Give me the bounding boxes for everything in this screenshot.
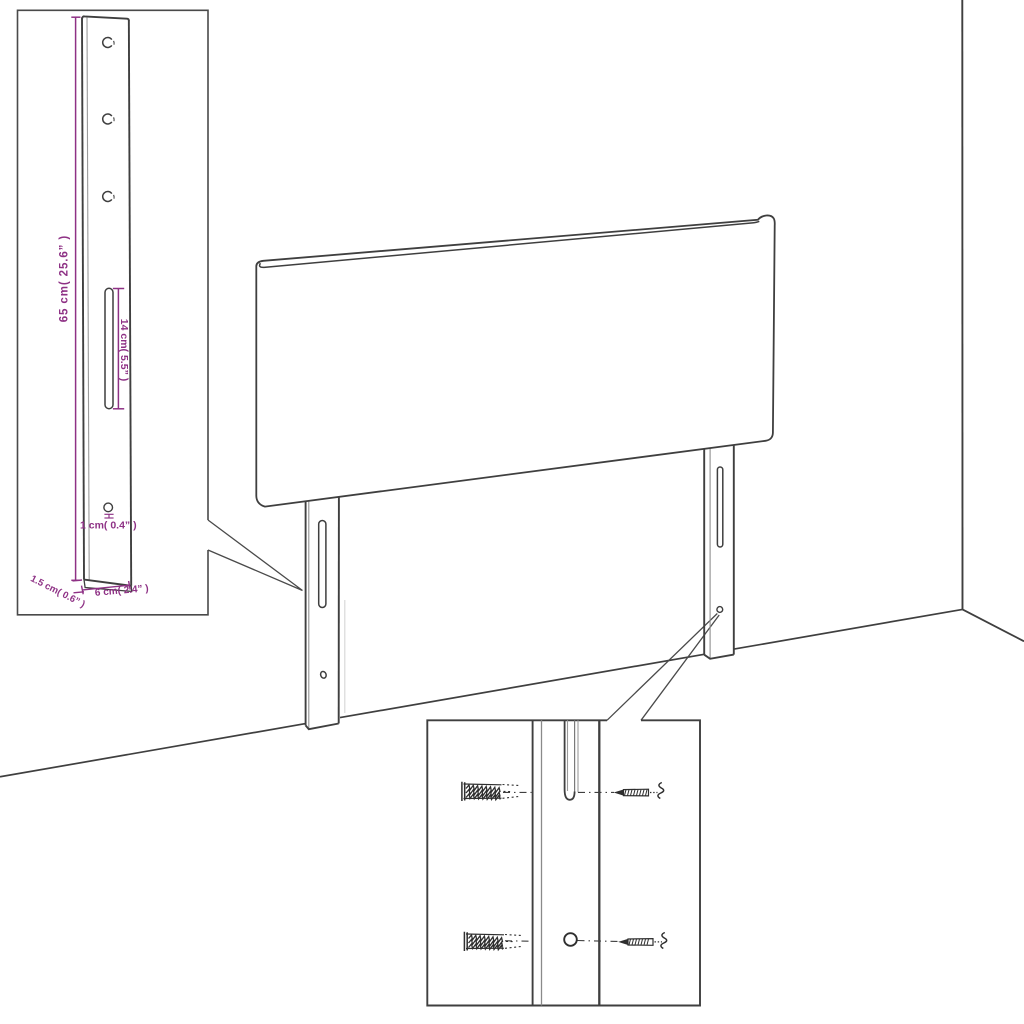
svg-text:6 cm( 2.4” ): 6 cm( 2.4” ) bbox=[94, 583, 149, 599]
svg-text:65 cm( 25.6” ): 65 cm( 25.6” ) bbox=[58, 235, 70, 322]
svg-text:14 cm( 5.5” ): 14 cm( 5.5” ) bbox=[118, 319, 130, 381]
svg-text:1 cm( 0.4” ): 1 cm( 0.4” ) bbox=[80, 520, 137, 532]
